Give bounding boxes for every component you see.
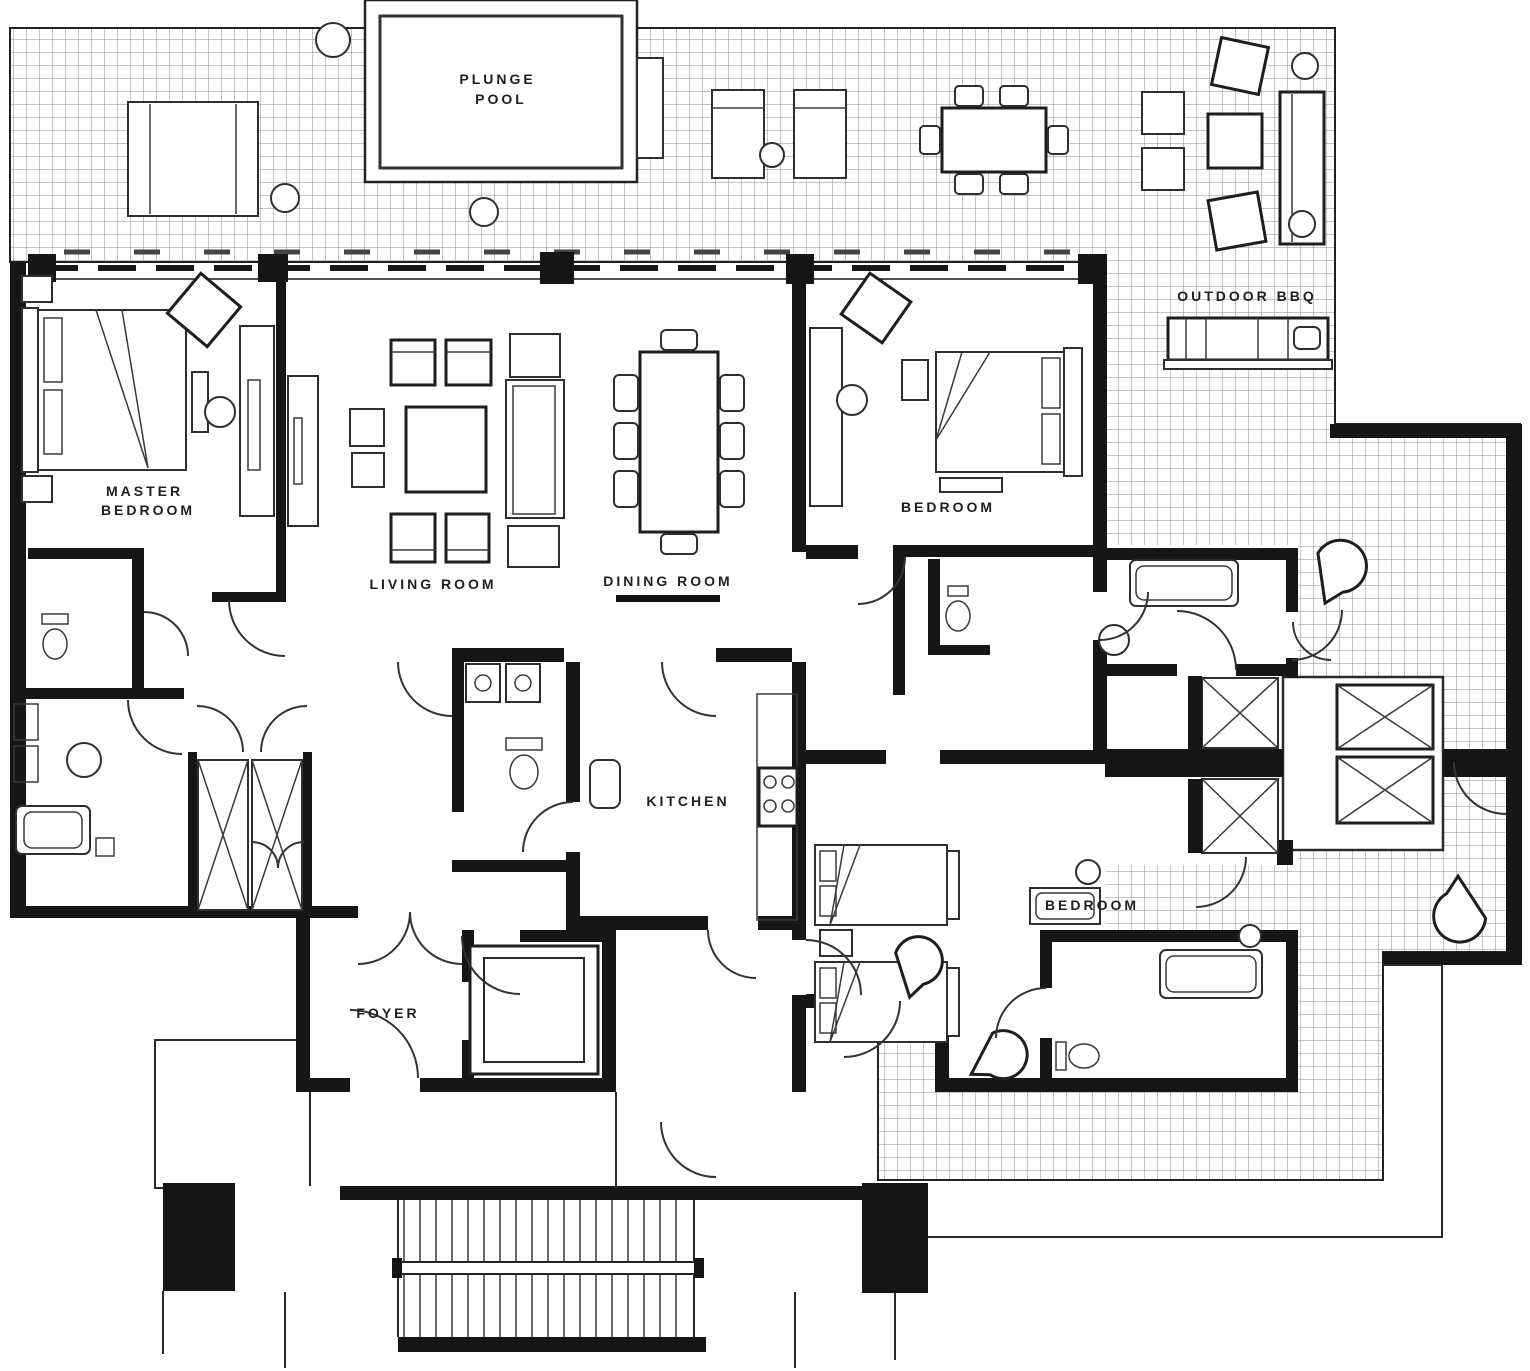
dining-room-underline: [616, 595, 720, 602]
terrace-lounge-chair: [128, 102, 258, 216]
bedroom-top-label: BEDROOM: [901, 499, 995, 515]
foyer-label: FOYER: [356, 1005, 419, 1021]
dining-room-label: DINING ROOM: [603, 573, 732, 589]
outdoor-bbq-counter: [1164, 318, 1332, 369]
kitchen-label: KITCHEN: [646, 793, 729, 809]
wc-room-left: [42, 614, 68, 659]
living-room-label: LIVING ROOM: [369, 576, 496, 592]
living-room-furniture: [350, 334, 564, 567]
bedroom-top-furniture: [810, 273, 1082, 506]
elevator-shaft-icon: [1337, 685, 1433, 749]
service-elevator: [470, 946, 598, 1074]
staircase: [163, 1183, 928, 1352]
powder-room: [466, 664, 542, 789]
hall-closets-left: [198, 760, 302, 910]
floor-plan: PLUNGE POOL MASTER BEDROOM LIVING ROOM D…: [0, 0, 1530, 1371]
elevator-shaft-icon: [1337, 757, 1433, 823]
outdoor-bbq-label: OUTDOOR BBQ: [1177, 288, 1317, 304]
master-bedroom-label: MASTER BEDROOM: [101, 483, 195, 518]
master-bathroom: [14, 704, 114, 856]
floor-plan-drawing: PLUNGE POOL MASTER BEDROOM LIVING ROOM D…: [0, 0, 1530, 1371]
dining-room-furniture: [614, 330, 744, 554]
bedroom-bottom-label: BEDROOM: [1045, 897, 1139, 913]
